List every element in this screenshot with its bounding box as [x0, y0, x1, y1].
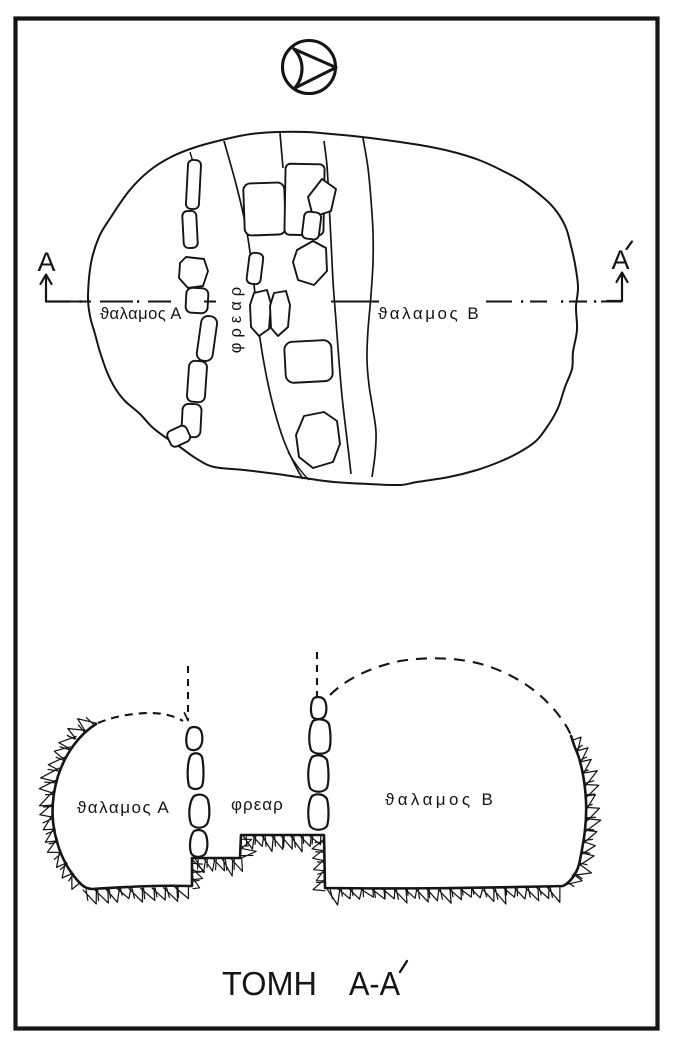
- svg-text:ϑαλαμος Β: ϑαλαμος Β: [378, 304, 481, 323]
- svg-text:ϑαλαμος Α: ϑαλαμος Α: [100, 305, 182, 323]
- svg-text:ϑαλαμος Α: ϑαλαμος Α: [77, 798, 170, 817]
- svg-text:A: A: [37, 247, 55, 277]
- svg-text:Α-Α: Α-Α: [349, 965, 400, 1002]
- svg-text:φρεαρ: φρεαρ: [231, 795, 284, 814]
- svg-text:φρεαρ: φρεαρ: [227, 282, 245, 353]
- svg-text:ΤΟΜΗ: ΤΟΜΗ: [222, 965, 317, 1002]
- svg-text:ϑαλαμος Β: ϑαλαμος Β: [385, 790, 496, 809]
